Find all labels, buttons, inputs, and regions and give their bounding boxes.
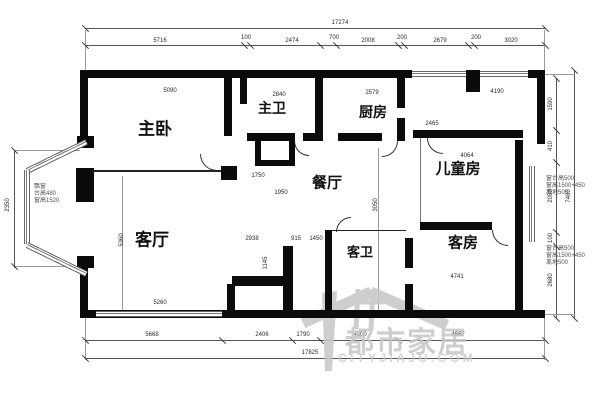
wall-kitchen-right-b	[397, 118, 405, 141]
partition-master-living	[92, 170, 222, 172]
door-arc-kitchen	[382, 141, 398, 157]
dimension-label: 3020	[504, 38, 517, 44]
window-top-2	[480, 71, 528, 77]
wall-guest-bath-divider-a	[405, 238, 413, 268]
annotation-note: 窗台高500窗高1500+450离地500	[546, 246, 585, 267]
wall-right-upper	[537, 70, 545, 144]
dimension-label: 5090	[163, 88, 176, 94]
wall-master-bath-left	[240, 78, 247, 104]
window-living-bottom	[96, 311, 222, 317]
dimension-label: 2579	[365, 90, 378, 96]
bay-window-front	[24, 170, 30, 244]
shaft-wall-middle	[232, 276, 293, 286]
shaft-wall-left	[227, 284, 235, 318]
dimension-label: 200	[397, 35, 407, 41]
dimension-label: 1145	[263, 257, 269, 270]
dimension-label: 2680	[548, 273, 554, 286]
dimension-label: 2679	[433, 38, 446, 44]
room-label-guest-bath: 客卫	[347, 242, 373, 261]
dimension-line-left	[14, 150, 15, 268]
wall-top	[80, 70, 412, 78]
wall-guest-bath-left	[325, 230, 332, 310]
room-label-kitchen: 厨房	[359, 102, 387, 122]
door-arc-master-bedroom	[200, 154, 217, 171]
bay-pier-middle	[76, 168, 94, 202]
dimension-label: 2465	[425, 121, 438, 127]
room-label-dining-room: 餐厅	[312, 172, 342, 193]
room-label-living-room: 客厅	[135, 226, 169, 251]
wall-left-upper	[80, 78, 88, 138]
dimension-label: 200	[471, 35, 481, 41]
dimension-label: 5360	[119, 233, 125, 246]
window-right	[529, 166, 535, 242]
wall-bath-kitchen-divider	[315, 78, 323, 140]
dimension-label: 1450	[309, 236, 322, 242]
wall-guest-bath-divider-b	[405, 284, 413, 310]
wall-top-pier	[466, 70, 480, 92]
door-arc-master-bath	[294, 141, 309, 156]
room-label-master-bath: 主卫	[258, 98, 286, 118]
wall-kitchen-right-a	[397, 70, 405, 108]
room-label-kids-room: 儿童房	[435, 158, 480, 179]
dimension-label: 1950	[274, 190, 287, 196]
extension-line	[544, 30, 545, 70]
wall-under-master-bath-b	[303, 133, 323, 141]
dimension-label: 915	[291, 236, 301, 242]
wall-right-lower	[515, 140, 523, 312]
room-label-master-bedroom: 主卧	[138, 115, 172, 140]
extension-line	[85, 30, 86, 70]
dimension-label: 5668	[145, 332, 158, 338]
dimension-label: 1590	[548, 97, 554, 110]
dimension-label: 17274	[332, 20, 349, 26]
floor-plan-canvas: 主卧 主卫 厨房 餐厅 儿童房 客厅 客卫 客房 172745716100247…	[0, 0, 600, 411]
annotation-note: 窗台高500窗高1500+450离地500	[546, 176, 585, 197]
corridor-pillar	[221, 166, 237, 180]
dimension-label: 700	[329, 35, 339, 41]
extension-line	[545, 74, 575, 75]
wall-kids-guest-divider	[420, 222, 492, 230]
door-arc-guest-room	[492, 230, 508, 246]
dimension-label: 4190	[490, 89, 503, 95]
dimension-label: 2474	[285, 38, 298, 44]
dimension-line-top-overall	[85, 28, 545, 29]
dimension-label: 100	[241, 35, 251, 41]
dimension-label: 1750	[251, 173, 264, 179]
dimension-label: 4741	[450, 274, 463, 280]
dimension-label: 2008	[361, 38, 374, 44]
wall-master-bedroom-right	[224, 78, 232, 136]
dimension-label: 2938	[245, 236, 258, 242]
door-arc-kids-room	[427, 138, 443, 154]
dimension-label: 5716	[153, 38, 166, 44]
dimension-label: 410	[548, 141, 554, 151]
room-label-guest-room: 客房	[448, 232, 478, 253]
dimension-label: 100	[548, 233, 554, 243]
dimension-line-right-segments	[556, 78, 557, 318]
partition-kids-room-left	[420, 138, 421, 222]
wall-kitchen-bottom	[338, 133, 382, 141]
annotation-note: 飘窗台高480窗高1520	[34, 184, 59, 205]
dimension-label: 3050	[373, 198, 379, 211]
wall-kids-room-top	[413, 130, 523, 138]
window-top-1	[412, 71, 466, 77]
dimension-label: 2350	[5, 198, 11, 211]
dimension-label: 2406	[255, 332, 268, 338]
watermark-site-text: CITYJIAJU.COM	[338, 351, 476, 365]
dimension-label: 5260	[153, 300, 166, 306]
partition-guest-bath-top	[332, 230, 406, 231]
shower-wall-right	[289, 140, 295, 166]
